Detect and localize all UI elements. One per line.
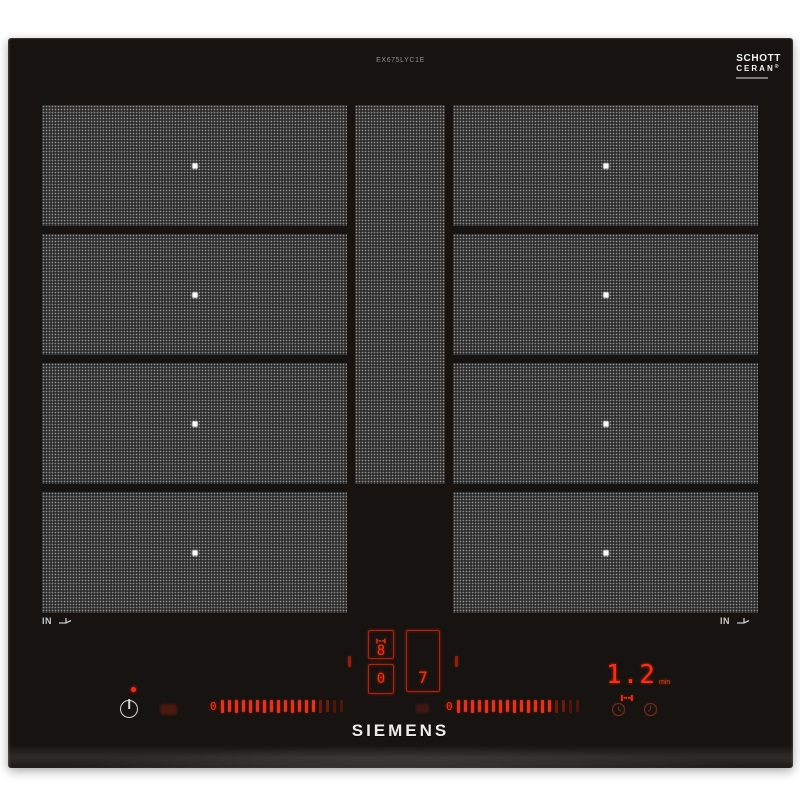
slider-bar — [555, 700, 558, 713]
power-slider-left[interactable] — [221, 699, 343, 713]
zone-level-right: 7 — [418, 670, 428, 686]
slider-bar — [228, 700, 231, 712]
front-edge-highlight — [8, 744, 793, 768]
pan-hook-icon — [58, 615, 73, 626]
slider-bar — [499, 700, 502, 713]
slider-bar — [270, 700, 273, 712]
slider-bar — [464, 700, 467, 712]
bridge-icon — [376, 639, 386, 644]
timer-clock-icon[interactable] — [643, 702, 658, 717]
slider-bar — [242, 700, 245, 712]
slider-bar — [284, 700, 287, 712]
slider-bar — [471, 700, 474, 713]
slider-bar — [506, 700, 509, 712]
zone-display-front[interactable]: 0 — [368, 664, 394, 694]
cooking-zone — [453, 492, 758, 613]
power-indicator-dot — [131, 687, 136, 692]
slider-bar — [256, 700, 259, 712]
cooking-zone — [42, 234, 347, 355]
slider-bar — [333, 700, 336, 713]
cooking-zone — [42, 492, 347, 613]
slider-bar — [319, 700, 322, 713]
cooking-zone — [42, 105, 347, 226]
in-marker-right: IN — [720, 615, 751, 626]
clock-icon[interactable] — [611, 702, 626, 717]
zone-display-rear[interactable]: 8 — [368, 630, 394, 659]
zone-level-front: 0 — [377, 672, 385, 686]
pan-position-dot — [192, 292, 197, 297]
pan-position-dot — [192, 421, 197, 426]
slider-bar — [221, 700, 224, 713]
timer-value: 1.2 — [606, 664, 656, 688]
pan-position-dot — [603, 163, 608, 168]
slider-zero-right[interactable]: 0 — [446, 701, 453, 712]
slider-bar — [291, 700, 294, 713]
slider-bar — [485, 700, 488, 713]
slider-bar — [298, 700, 301, 712]
slider-bar — [263, 700, 266, 713]
slider-bar — [326, 700, 329, 712]
slider-bar — [277, 700, 280, 713]
wipe-protection-icon[interactable] — [160, 704, 177, 715]
pan-position-dot — [603, 550, 608, 555]
registered-mark: ® — [775, 64, 781, 70]
slider-bar — [520, 700, 523, 712]
slider-bar — [541, 700, 544, 713]
siemens-logo: SIEMENS — [8, 721, 793, 741]
slider-bar — [513, 700, 516, 713]
slider-bar — [478, 700, 481, 712]
power-slider-right[interactable] — [457, 699, 579, 713]
schott-ceran-logo: SCHOTT CERAN® — [736, 54, 781, 79]
slider-bar — [312, 700, 315, 712]
in-label-left: IN — [42, 616, 52, 626]
pan-position-dot — [603, 292, 608, 297]
slider-bar — [457, 700, 460, 713]
slider-bar — [340, 700, 343, 712]
cooking-zone — [42, 363, 347, 484]
slider-bar — [576, 700, 579, 712]
slider-bar — [492, 700, 495, 712]
cooking-zone — [453, 234, 758, 355]
schott-logo-line2: CERAN® — [736, 65, 781, 73]
fine-print-line — [736, 77, 768, 79]
zone-display-right[interactable]: 7 — [406, 630, 440, 692]
slider-bar — [235, 700, 238, 713]
in-marker-left: IN — [42, 615, 73, 626]
timer-display: 1.2 min — [606, 664, 670, 688]
cooking-zone — [453, 363, 758, 484]
slider-bar — [527, 700, 530, 713]
power-icon[interactable] — [120, 700, 138, 718]
move-function-icon[interactable] — [416, 704, 429, 713]
pan-position-dot — [192, 550, 197, 555]
pan-position-dot — [603, 421, 608, 426]
zone-level-rear: 8 — [377, 644, 385, 658]
timer-unit: min — [659, 679, 670, 688]
in-label-right: IN — [720, 616, 730, 626]
slider-bar — [569, 700, 572, 713]
slider-bar — [534, 700, 537, 712]
induction-hob: EX675LYC1E SCHOTT CERAN® IN IN 8 0 7 — [8, 38, 793, 768]
pan-position-dot — [192, 163, 197, 168]
slider-bar — [548, 700, 551, 712]
cooking-zone — [453, 105, 758, 226]
slider-bar — [249, 700, 252, 713]
slider-zero-left[interactable]: 0 — [210, 701, 217, 712]
zone-select-mark-left — [348, 656, 351, 667]
pan-hook-icon — [736, 615, 751, 626]
slider-bar — [562, 700, 565, 712]
zone-select-mark-right — [455, 656, 458, 667]
model-label: EX675LYC1E — [8, 57, 793, 64]
center-zone-strip — [355, 105, 445, 484]
bridge-icon — [621, 695, 633, 701]
slider-bar — [305, 700, 308, 713]
